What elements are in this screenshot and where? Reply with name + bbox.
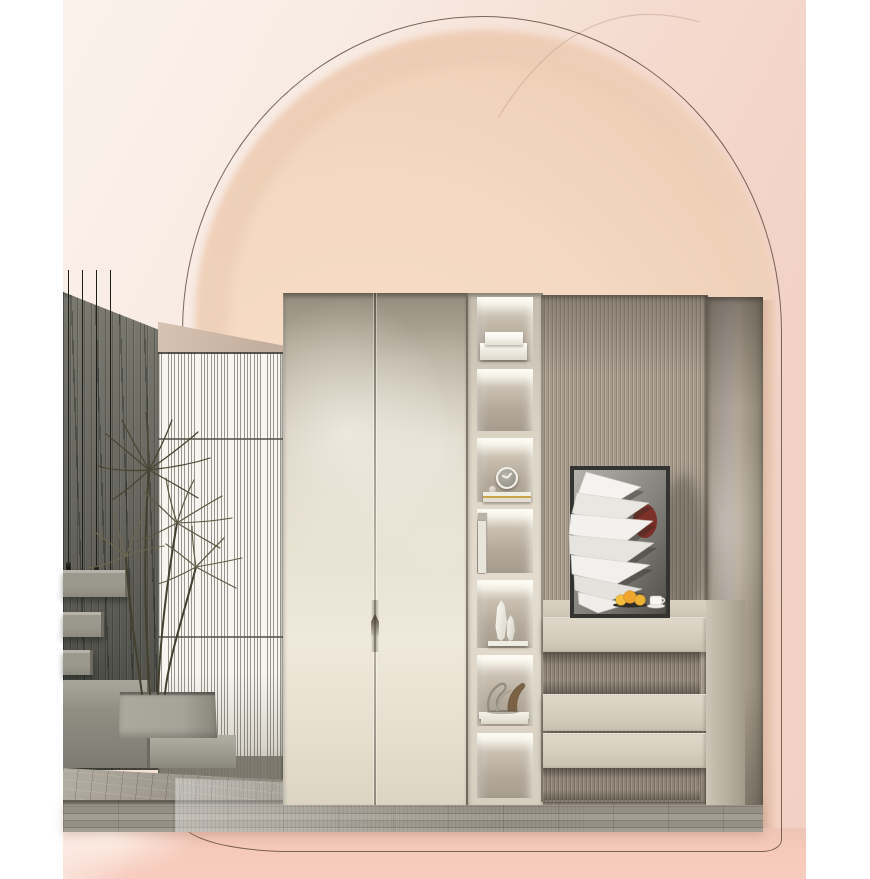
cabinet-filler-panel: [706, 600, 745, 805]
fluted-recess: [543, 652, 700, 694]
storage-box: [485, 332, 523, 345]
fluted-recess: [543, 768, 700, 800]
pendant-cord: [96, 270, 97, 566]
door-seam: [374, 293, 376, 805]
product-showcase-image: [0, 0, 870, 879]
book-stack: [483, 492, 531, 502]
bottom-left-light-streak: [63, 828, 313, 879]
drawer-unit-top: [543, 600, 707, 617]
plant-pot: [118, 692, 217, 738]
pendant-cord: [82, 270, 83, 582]
book-row: [478, 513, 525, 573]
shelf-cell-7: [477, 733, 533, 798]
storage-box: [480, 343, 527, 360]
stair-step: [63, 570, 128, 597]
magazine-stack: [481, 718, 528, 724]
shelf-clock: [496, 467, 518, 489]
stair-step: [63, 612, 104, 637]
pendant-cord: [110, 270, 111, 588]
drawer-front: [543, 694, 706, 731]
scene-edge-shadow: [763, 300, 777, 828]
drawer-front: [543, 733, 706, 768]
stair-step: [63, 650, 93, 675]
vase-base-shelf: [488, 641, 528, 646]
pendant-cord: [68, 270, 69, 562]
book-spine: [478, 521, 486, 573]
shelf-cell-2: [477, 369, 533, 431]
drawer-front: [543, 617, 706, 652]
concrete-plinth: [150, 735, 236, 768]
